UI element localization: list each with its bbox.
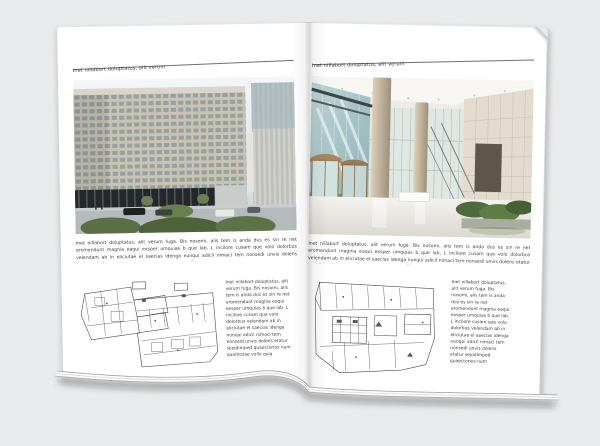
left-body-paragraph: Inet nillabort doluptatus, alit verum fu… (76, 236, 297, 263)
floor-plan-left (77, 280, 221, 370)
right-header-text: Inet nillabort doluptatus, alit verum (312, 61, 405, 68)
left-body-text: Inet nillabort doluptatus, alit verum fu… (76, 236, 297, 263)
left-column-text-block: Inet nillabort doluptatus, alit verum fu… (225, 278, 292, 365)
floor-plan-right (306, 276, 442, 379)
left-column-text: Inet nillabort doluptatus, alit verum fu… (225, 278, 292, 358)
lobby-interior-photo (309, 76, 534, 239)
open-brochure: Inet nillabort doluptatus, alit verum (55, 18, 561, 438)
mockup-stage: Inet nillabort doluptatus, alit verum (0, 0, 600, 446)
left-header-text: Inet nillabort doluptatus, alit verum (73, 64, 166, 73)
right-page: Inet nillabort doluptatus, alit verum (299, 22, 548, 428)
building-exterior-photo (73, 76, 297, 234)
page-corner-curl (532, 27, 548, 43)
left-page-header-block: Inet nillabort doluptatus, alit verum (72, 52, 293, 71)
right-column-text: Inet nillabort doluptatus, alit verum fu… (450, 279, 512, 366)
left-page: Inet nillabort doluptatus, alit verum (57, 22, 314, 417)
right-page-header-block: Inet nillabort doluptatus, alit verum (312, 51, 534, 66)
right-body-paragraph: Inet nillabort doluptatus, alit verum fu… (308, 240, 530, 268)
right-column-text-block: Inet nillabort doluptatus, alit verum fu… (450, 279, 512, 366)
right-body-text: Inet nillabort doluptatus, alit verum fu… (308, 240, 530, 268)
